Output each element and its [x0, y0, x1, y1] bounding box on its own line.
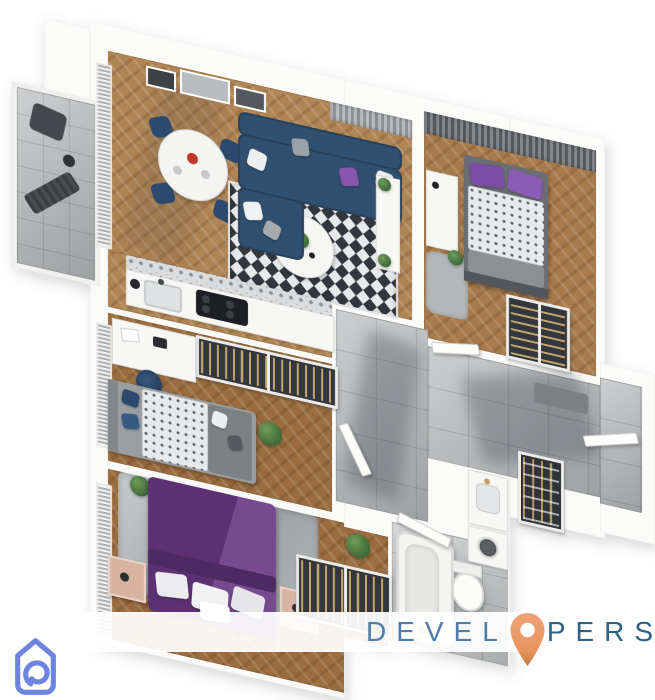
burner — [226, 300, 234, 310]
headboard — [108, 379, 118, 453]
watermark-text-left: DEVEL — [366, 617, 508, 647]
pillow-dark — [227, 436, 244, 451]
pillow-navy — [121, 388, 140, 409]
table-flowers — [187, 152, 198, 166]
pillow-gray — [291, 138, 310, 157]
bathroom-sink-cabinet — [468, 469, 508, 532]
burner — [202, 294, 210, 304]
developers-watermark: DEVEL PERS — [366, 617, 655, 673]
sink-basin — [476, 482, 500, 515]
desk-papers — [120, 328, 140, 343]
balcony-chair — [28, 102, 67, 143]
bedroom1-bed — [464, 154, 548, 299]
pillow-navy — [121, 413, 140, 429]
balcony-lounger — [23, 171, 81, 215]
coffee-table-decor — [309, 252, 315, 259]
floor-plan-render: DEVEL PERS — [0, 0, 655, 700]
table-plate — [201, 169, 210, 180]
shoe-rack — [518, 451, 564, 534]
desk-laptop — [153, 336, 167, 349]
washer-door — [477, 534, 499, 561]
pillow-white — [155, 571, 189, 599]
patterned-duvet — [142, 389, 208, 472]
location-pin-icon — [508, 617, 547, 673]
balcony-side-table — [63, 153, 75, 168]
table-plate — [173, 165, 182, 176]
light-shadow — [461, 371, 600, 464]
watermark-text-right: PERS — [547, 617, 655, 647]
table-lamp — [120, 571, 129, 582]
burner — [226, 310, 234, 320]
pillow-purple — [469, 162, 505, 189]
balcony — [12, 81, 100, 287]
bedroom1-desk — [426, 170, 458, 253]
living-window-blinds — [96, 62, 112, 250]
pillow-white — [242, 202, 263, 221]
burner — [202, 304, 210, 314]
nightstand — [108, 555, 146, 604]
house-logo-icon — [12, 637, 59, 700]
apartment-plan — [0, 0, 655, 700]
